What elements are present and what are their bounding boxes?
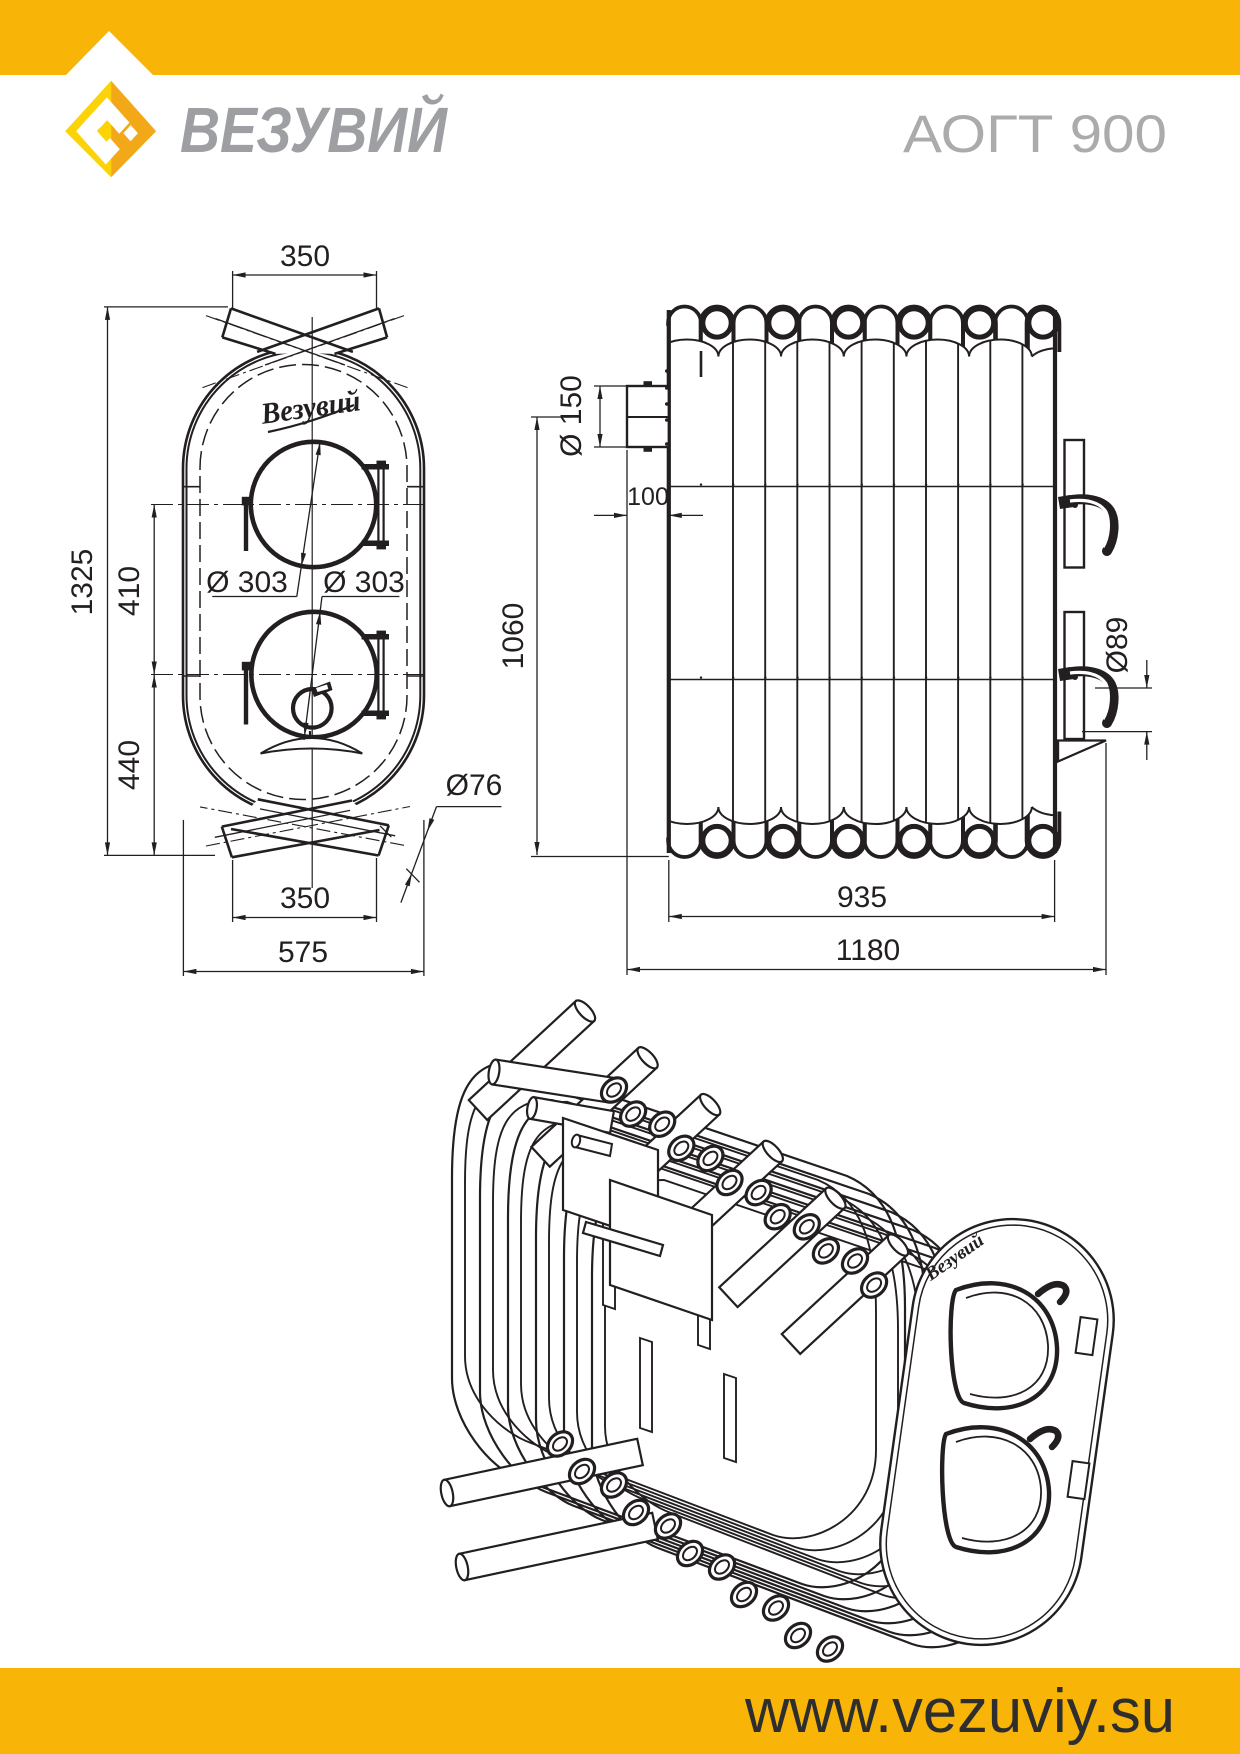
svg-text:Ø76: Ø76 <box>446 769 503 802</box>
svg-text:100: 100 <box>627 483 669 511</box>
svg-text:Ø 150: Ø 150 <box>555 375 588 457</box>
svg-text:350: 350 <box>280 240 330 273</box>
svg-text:Ø89: Ø89 <box>1101 617 1134 674</box>
svg-text:575: 575 <box>278 936 328 969</box>
svg-text:Ø 303: Ø 303 <box>206 566 288 599</box>
svg-text:1325: 1325 <box>66 549 99 616</box>
svg-text:АОГТ 900: АОГТ 900 <box>903 105 1167 164</box>
svg-text:935: 935 <box>837 881 887 914</box>
svg-text:350: 350 <box>280 882 330 915</box>
svg-text:Ø 303: Ø 303 <box>323 566 405 599</box>
svg-text:ВЕЗУВИЙ: ВЕЗУВИЙ <box>180 92 449 166</box>
svg-text:www.vezuviy.su: www.vezuviy.su <box>744 1677 1175 1746</box>
svg-text:1060: 1060 <box>497 603 530 670</box>
svg-text:1180: 1180 <box>836 934 901 967</box>
svg-text:410: 410 <box>113 566 146 616</box>
svg-text:440: 440 <box>113 740 146 790</box>
